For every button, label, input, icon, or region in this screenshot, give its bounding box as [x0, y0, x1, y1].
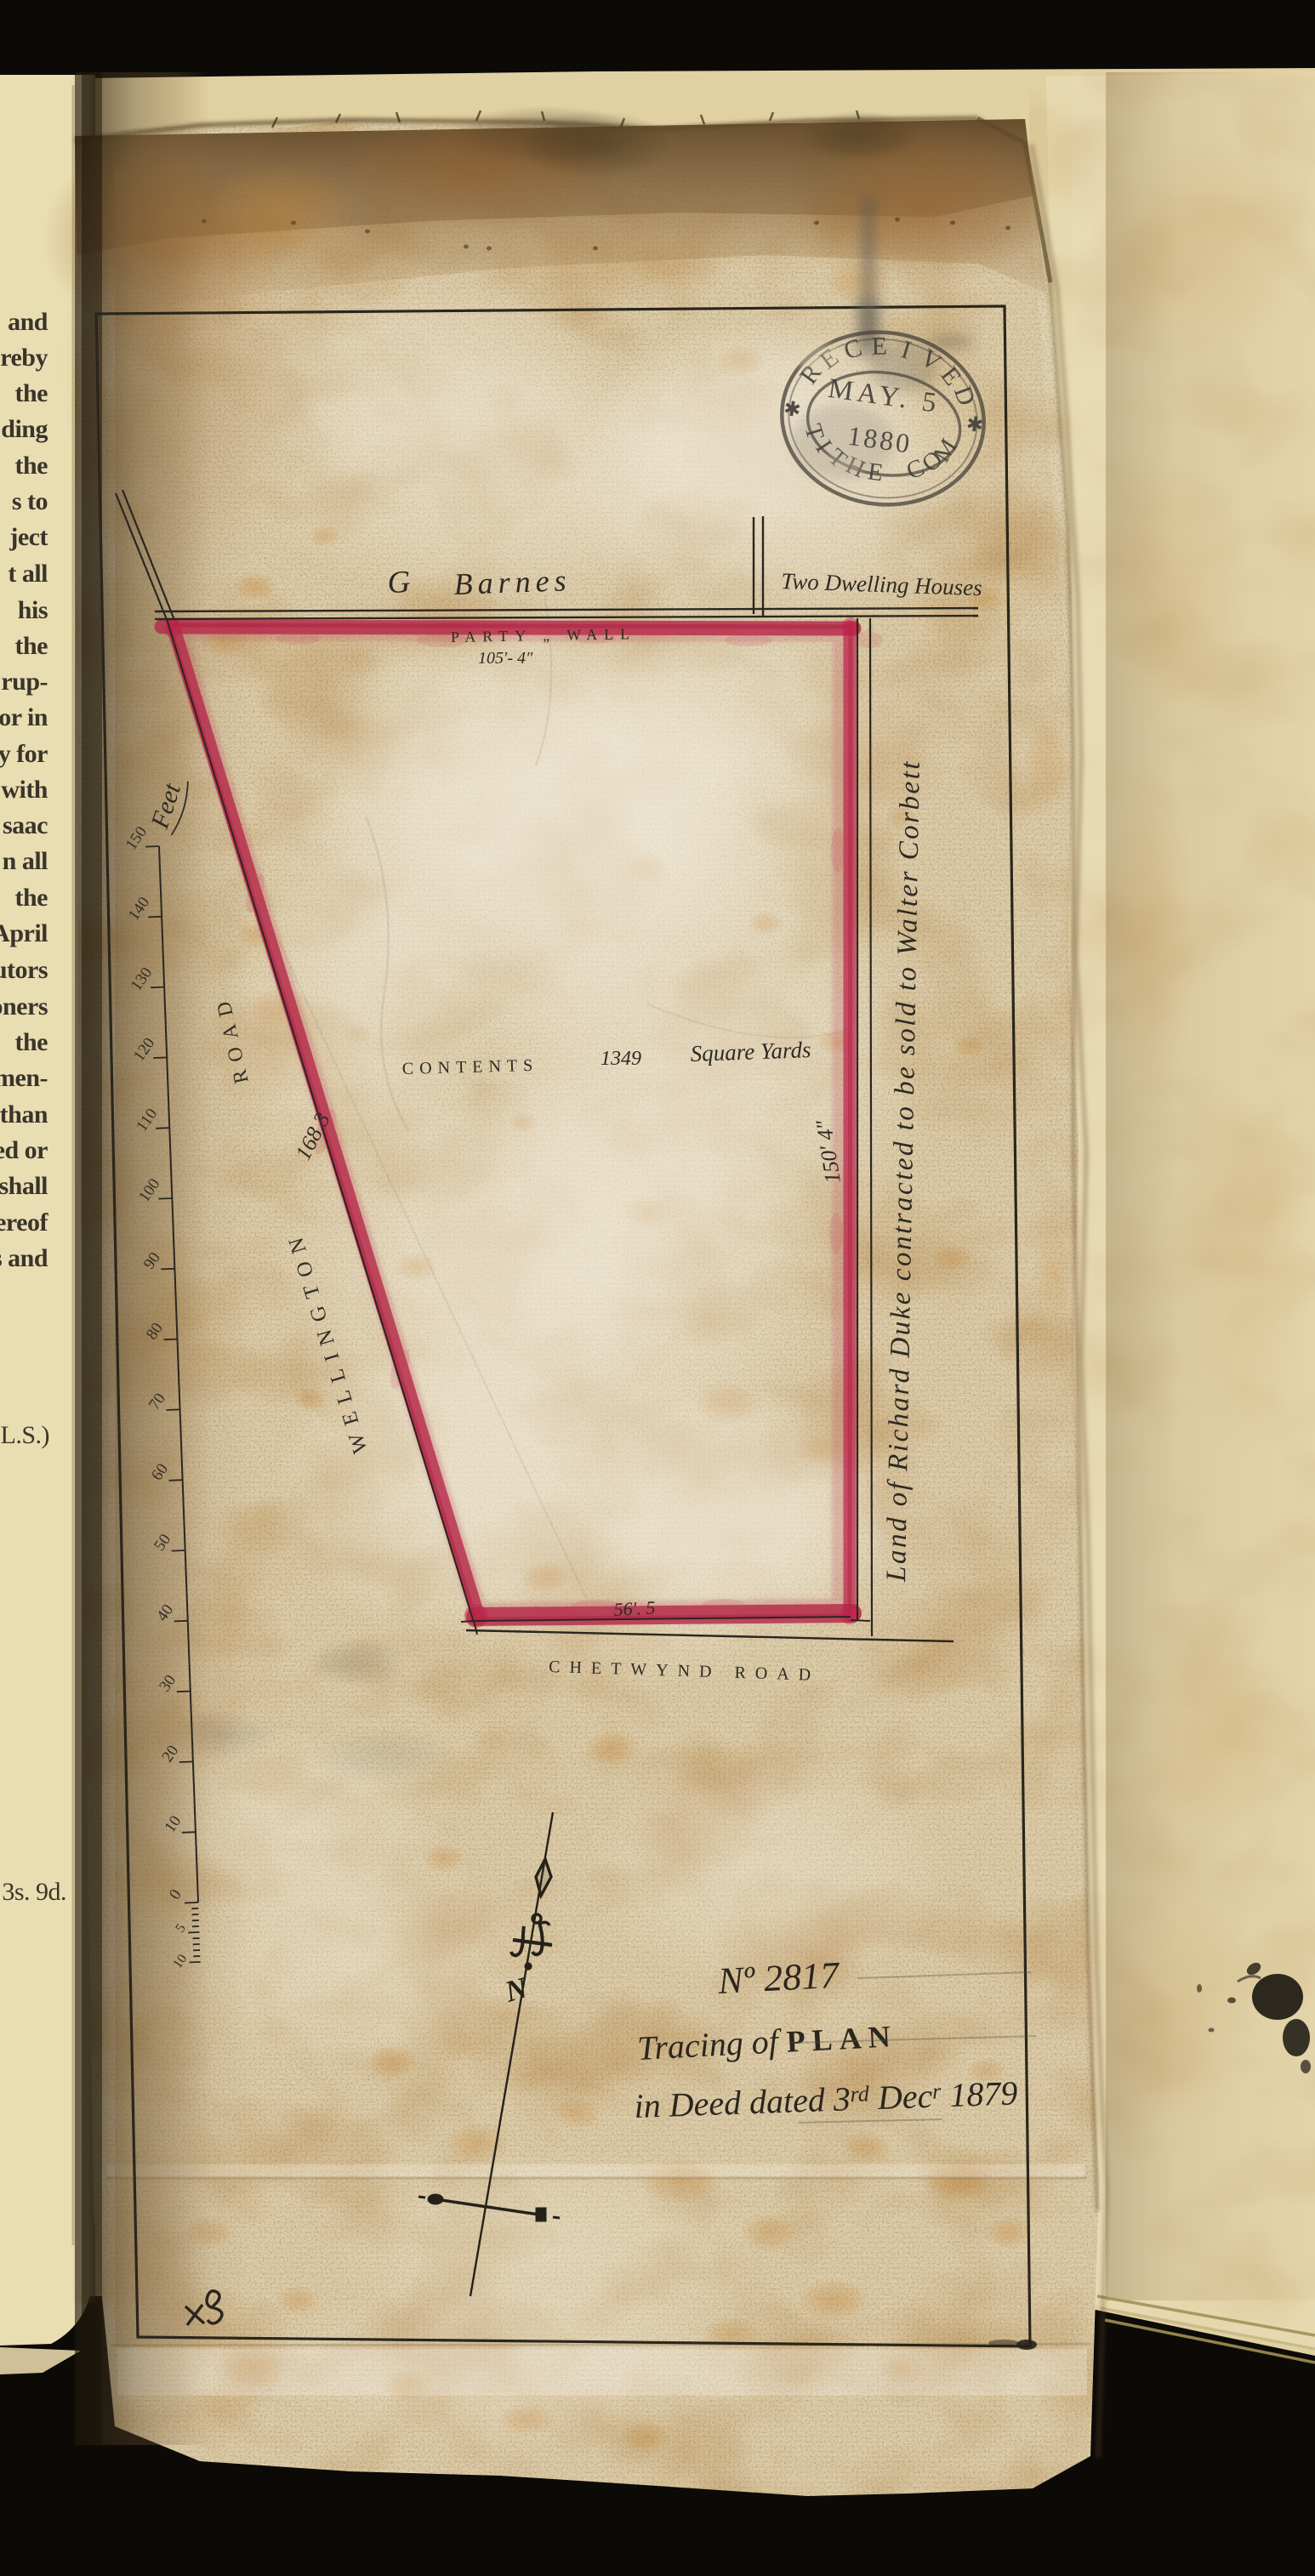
svg-text:men-: men-	[0, 1064, 48, 1092]
svg-text:3s. 9d.: 3s. 9d.	[2, 1878, 66, 1906]
svg-text:with: with	[1, 776, 48, 804]
svg-text:shall: shall	[0, 1172, 48, 1200]
svg-text:t all: t all	[8, 560, 48, 588]
svg-text:✱: ✱	[965, 413, 985, 438]
svg-text:105′- 4″: 105′- 4″	[478, 649, 533, 668]
svg-text:rup-: rup-	[1, 668, 48, 696]
svg-text:the: the	[15, 1028, 48, 1056]
svg-text:ject: ject	[9, 523, 48, 551]
svg-text:Square Yards: Square Yards	[690, 1037, 811, 1066]
svg-text:CONTENTS: CONTENTS	[402, 1056, 539, 1078]
svg-text:April: April	[0, 919, 48, 947]
svg-text:✱: ✱	[783, 398, 803, 423]
svg-text:and: and	[8, 308, 48, 336]
svg-text:(L.S.): (L.S.)	[0, 1421, 49, 1449]
svg-text:saac: saac	[3, 811, 48, 839]
svg-text:E: E	[871, 332, 887, 360]
svg-text:ereof: ereof	[0, 1208, 48, 1237]
svg-text:PARTY „ WALL: PARTY „ WALL	[451, 625, 637, 645]
svg-text:the: the	[15, 452, 48, 480]
svg-text:1349: 1349	[601, 1048, 641, 1070]
svg-text:the: the	[15, 379, 48, 407]
svg-text:than: than	[0, 1100, 48, 1129]
svg-text:Nº 2817: Nº 2817	[716, 1954, 841, 2003]
svg-text:utors: utors	[0, 956, 48, 984]
svg-text:the: the	[15, 884, 48, 912]
svg-text:reby: reby	[0, 344, 48, 372]
svg-text:ed or: ed or	[0, 1136, 48, 1164]
svg-text:G: G	[387, 565, 411, 600]
svg-text:the: the	[15, 632, 48, 660]
svg-text:y for: y for	[0, 740, 48, 768]
svg-text:n all: n all	[3, 847, 48, 875]
svg-text:ding: ding	[1, 415, 48, 443]
svg-text:oners: oners	[0, 992, 48, 1021]
svg-text:Barnes: Barnes	[453, 563, 572, 601]
svg-text:56′. 5: 56′. 5	[613, 1596, 656, 1620]
svg-text:or in: or in	[0, 703, 48, 731]
svg-text:his: his	[18, 596, 48, 624]
svg-text:s and: s and	[0, 1244, 48, 1272]
svg-text:s to: s to	[12, 487, 48, 515]
